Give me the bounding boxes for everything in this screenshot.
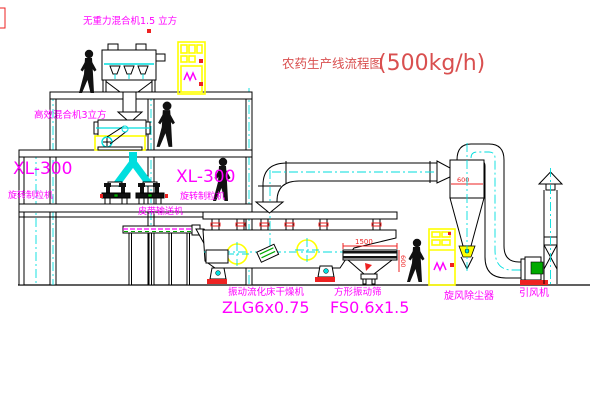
- label-granulator-mid-model: XL-300: [176, 167, 235, 187]
- label-belt-conveyor: 皮带输送机: [138, 205, 183, 217]
- cyclone-dimension: 600: [457, 176, 469, 184]
- dryer-spring-mounts: [211, 219, 381, 230]
- person-top-platform: [79, 50, 97, 93]
- gravity-free-mixer: [102, 44, 165, 112]
- control-cabinet-2: [429, 229, 455, 285]
- exhaust-duct: [256, 161, 452, 213]
- label-sieve-model: FS0.6x1.5: [330, 298, 409, 317]
- third-floor-slab: [19, 204, 252, 212]
- label-fan: 引风机: [519, 286, 549, 299]
- label-dryer-name: 振动流化床干燥机: [228, 286, 305, 298]
- sieve-width-dimension: 600: [399, 255, 407, 267]
- label-sieve-name: 方形振动筛: [334, 286, 382, 298]
- label-cyclone: 旋风除尘器: [444, 289, 494, 302]
- process-flow-diagram: 600 1500 600: [0, 0, 600, 403]
- top-platform-slab: [50, 92, 252, 99]
- exhaust-hood: [256, 202, 283, 213]
- fan-motor: [531, 262, 543, 274]
- sieve-length-dimension: 1500: [355, 238, 373, 246]
- label-granulator-mid-name: 旋转制粒机: [180, 190, 225, 202]
- diagram-title-capacity: (500kg/h): [378, 51, 485, 76]
- diagram-title: 农药生产线流程图: [282, 56, 382, 71]
- label-granulator-left-name: 旋转制粒机: [8, 189, 53, 201]
- corner-red-box: [0, 8, 5, 28]
- label-high-efficiency-mixer: 高效混合机3立方: [34, 109, 107, 121]
- mixer-discharge-chute: [123, 92, 136, 112]
- cabinet-marking: [184, 73, 196, 80]
- cabinet-marking: [434, 263, 446, 270]
- person-ground: [407, 239, 425, 282]
- control-cabinet-1: [178, 42, 205, 94]
- label-dryer-model: ZLG6x0.75: [222, 298, 310, 317]
- label-gravity-free-mixer: 无重力混合机1.5 立方: [83, 15, 177, 27]
- label-granulator-left-model: XL-300: [13, 159, 72, 179]
- red-marker-dot: [147, 29, 151, 33]
- dryer-feed-box: [206, 250, 228, 263]
- person-second-floor: [157, 102, 175, 147]
